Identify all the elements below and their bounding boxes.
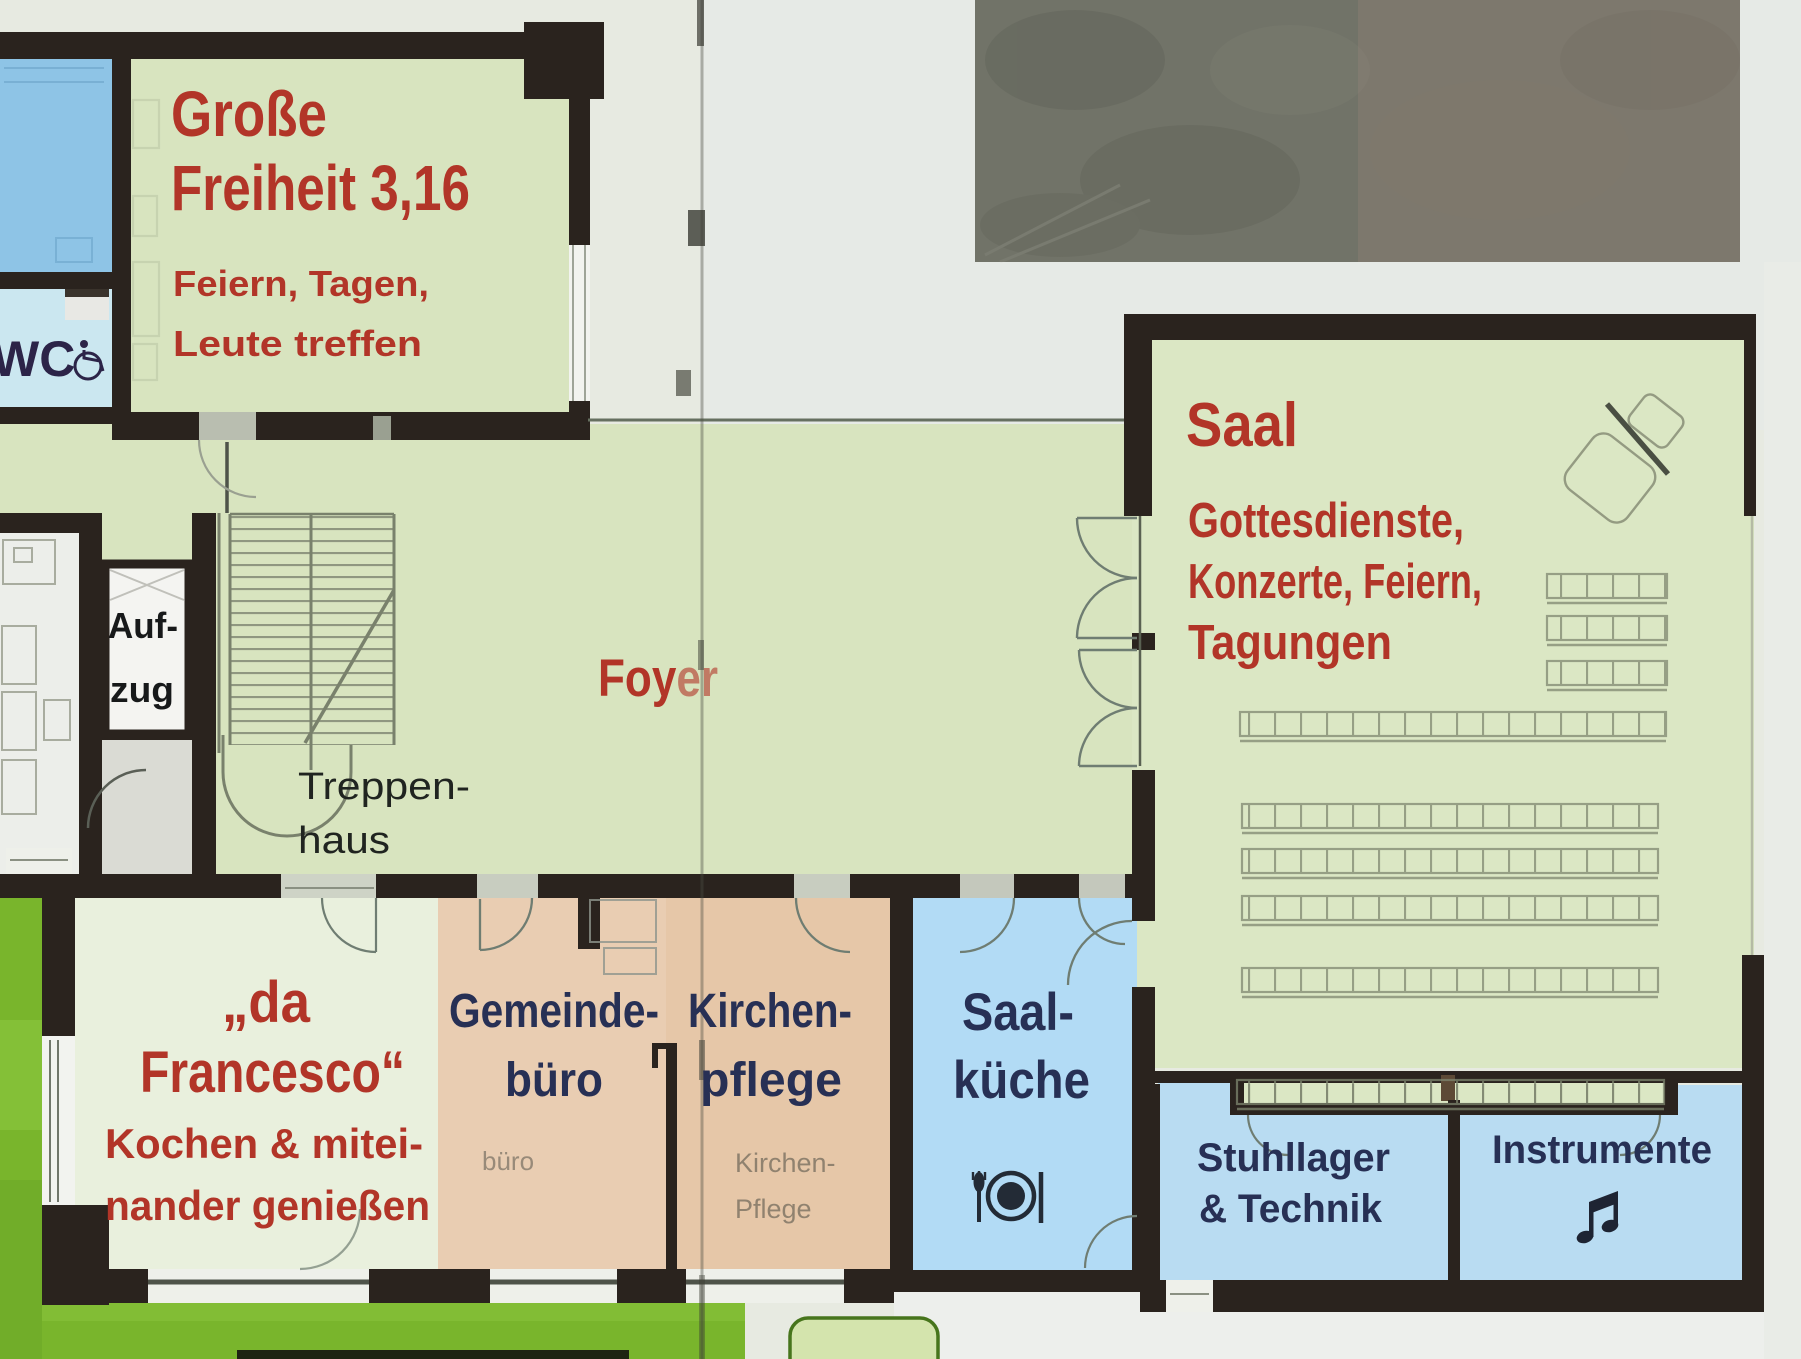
svg-text:Saal-: Saal- — [962, 983, 1074, 1042]
svg-text:Foyer: Foyer — [598, 649, 718, 708]
svg-text:Instrumente: Instrumente — [1492, 1128, 1712, 1172]
svg-text:Gottesdienste,: Gottesdienste, — [1188, 494, 1464, 548]
svg-text:büro: büro — [505, 1054, 603, 1107]
svg-text:„da: „da — [222, 970, 311, 1035]
svg-text:nander genießen: nander genießen — [105, 1182, 430, 1229]
svg-text:Konzerte, Feiern,: Konzerte, Feiern, — [1188, 555, 1482, 609]
svg-text:& Technik: & Technik — [1199, 1187, 1383, 1231]
svg-text:haus: haus — [298, 820, 390, 862]
svg-text:Saal: Saal — [1186, 391, 1298, 460]
svg-text:Auf-: Auf- — [108, 605, 178, 646]
svg-text:zug: zug — [110, 669, 174, 710]
svg-text:Freiheit 3,16: Freiheit 3,16 — [171, 152, 470, 224]
svg-text:Große: Große — [171, 78, 327, 150]
svg-text:Treppen-: Treppen- — [298, 766, 470, 808]
svg-text:Gemeinde-: Gemeinde- — [449, 985, 659, 1038]
svg-text:Pflege: Pflege — [735, 1194, 812, 1224]
svg-text:Feiern, Tagen,: Feiern, Tagen, — [173, 263, 429, 304]
svg-text:Francesco“: Francesco“ — [140, 1040, 405, 1105]
svg-text:küche: küche — [953, 1051, 1090, 1110]
svg-text:Stuhllager: Stuhllager — [1197, 1136, 1390, 1180]
svg-text:Tagungen: Tagungen — [1188, 616, 1392, 670]
svg-text:WC: WC — [0, 331, 75, 387]
svg-text:Leute treffen: Leute treffen — [173, 323, 422, 364]
svg-text:Kochen & mitei-: Kochen & mitei- — [105, 1120, 423, 1167]
svg-text:pflege: pflege — [700, 1054, 842, 1107]
svg-text:Kirchen-: Kirchen- — [688, 985, 852, 1038]
svg-text:Kirchen-: Kirchen- — [735, 1148, 836, 1178]
svg-text:büro: büro — [482, 1146, 534, 1176]
